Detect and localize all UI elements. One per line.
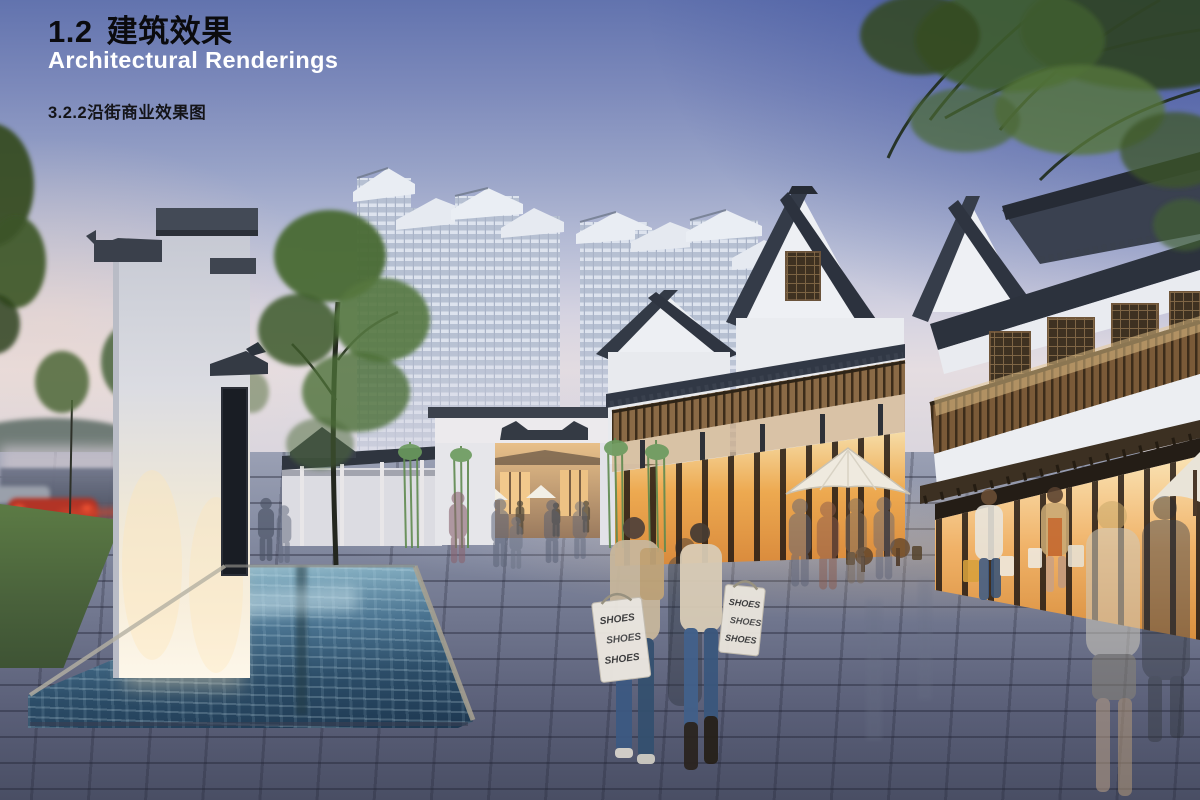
figure-caption: 3.2.2沿街商业效果图 (48, 99, 608, 123)
title-chinese: 建筑效果 (107, 14, 233, 49)
left-edge-foliage (0, 123, 46, 354)
page-subtitle-english: Architectural Renderings (48, 49, 608, 73)
shopping-bag: SHOES SHOES SHOES (591, 591, 651, 682)
shopping-bag: SHOES SHOES SHOES (719, 579, 766, 656)
screen-wall (86, 208, 268, 678)
tan-bag (640, 548, 664, 600)
page-title: 1.2建筑效果 (48, 16, 608, 47)
section-number: 1.2 (48, 14, 93, 49)
wall-window-slot (222, 388, 247, 575)
pool-curbs (30, 566, 473, 724)
document-page: SHOES SHOES SHOES SHOES SHOES SHOES (0, 0, 1200, 800)
ghost-figures-foreground (1086, 496, 1190, 796)
page-header: 1.2建筑效果 Architectural Renderings 3.2.2沿街… (48, 16, 608, 123)
